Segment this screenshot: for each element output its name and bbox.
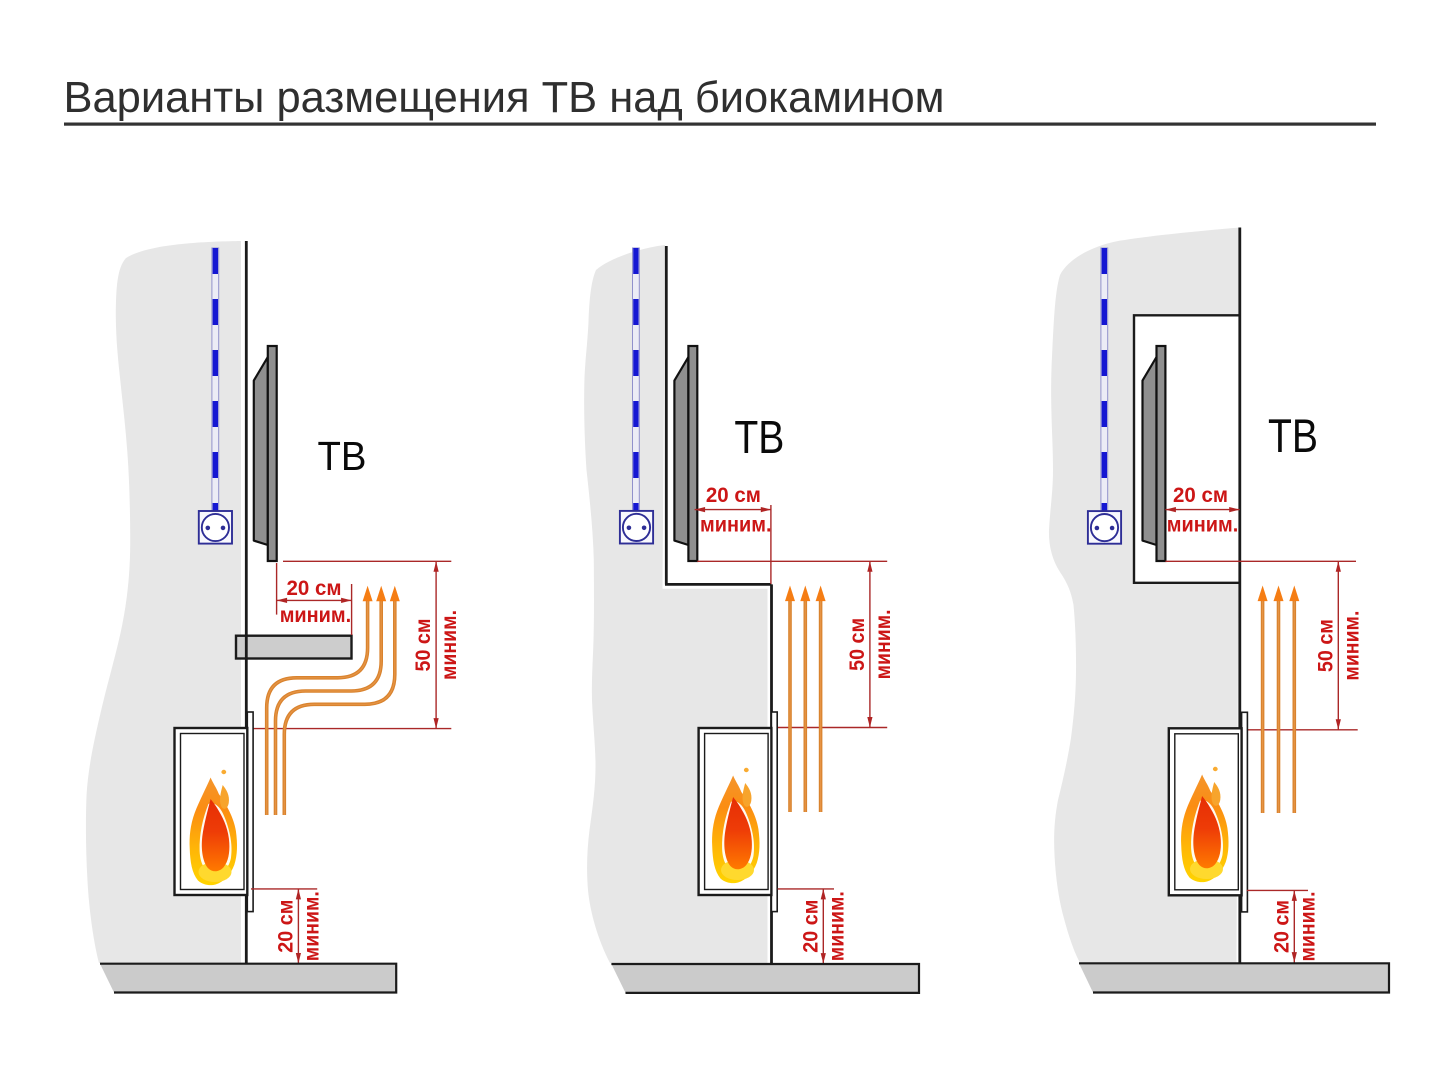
- svg-text:миним.: миним.: [825, 891, 848, 961]
- svg-text:20 см: 20 см: [799, 900, 822, 953]
- svg-text:Варианты размещения ТВ над био: Варианты размещения ТВ над биокамином: [64, 73, 945, 122]
- svg-text:миним.: миним.: [1296, 892, 1319, 962]
- svg-text:50 см: 50 см: [846, 618, 869, 671]
- svg-text:ТВ: ТВ: [1268, 409, 1318, 462]
- svg-text:миним.: миним.: [1167, 514, 1239, 537]
- svg-text:ТВ: ТВ: [734, 411, 784, 463]
- svg-text:миним.: миним.: [1340, 611, 1363, 681]
- svg-text:миним.: миним.: [872, 609, 895, 679]
- svg-text:миним.: миним.: [300, 891, 323, 961]
- svg-text:20 см: 20 см: [706, 484, 761, 507]
- svg-text:50 см: 50 см: [1314, 619, 1337, 672]
- svg-text:50 см: 50 см: [412, 619, 435, 672]
- svg-text:20 см: 20 см: [287, 577, 342, 600]
- svg-text:ТВ: ТВ: [318, 433, 367, 479]
- svg-text:миним.: миним.: [700, 514, 772, 537]
- svg-text:20 см: 20 см: [1173, 484, 1228, 507]
- svg-text:20 см: 20 см: [274, 900, 297, 953]
- svg-text:20 см: 20 см: [1270, 900, 1293, 953]
- svg-text:миним.: миним.: [438, 610, 461, 680]
- svg-text:миним.: миним.: [280, 604, 352, 627]
